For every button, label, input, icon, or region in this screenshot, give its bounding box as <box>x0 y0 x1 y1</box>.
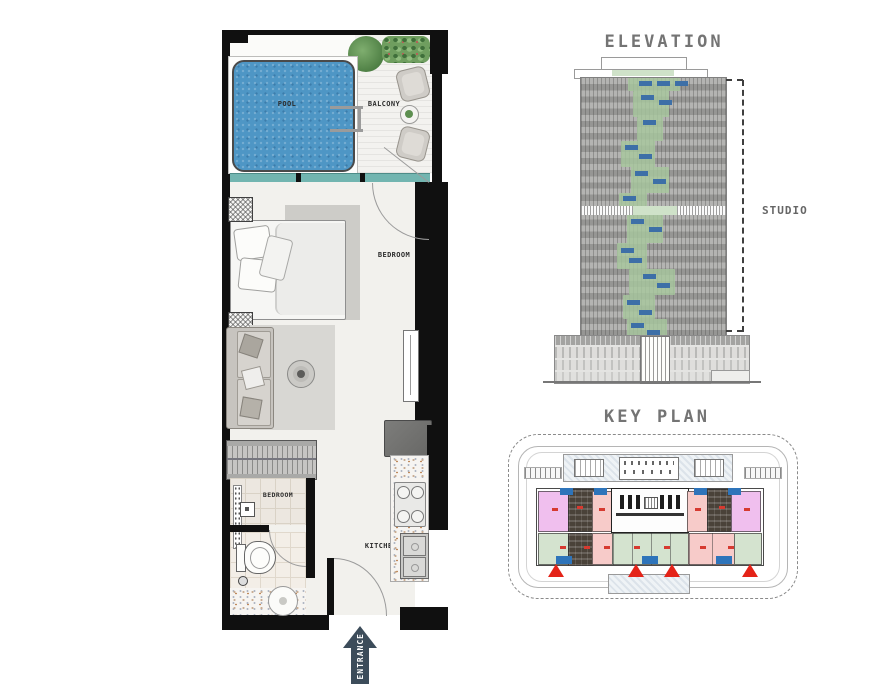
unit-marker <box>577 506 583 509</box>
wardrobe-rail <box>227 441 316 446</box>
key-plan-title: KEY PLAN <box>577 407 737 427</box>
floor-drain-icon <box>238 576 248 586</box>
chair-cushion <box>401 131 426 157</box>
wall-segment <box>360 173 365 182</box>
green-strip <box>617 243 647 269</box>
pool-ladder-icon <box>358 106 361 132</box>
wall-segment <box>400 607 448 630</box>
unit-marker <box>604 546 610 549</box>
tv-unit-icon <box>403 330 419 402</box>
bedroom-label: BEDROOM <box>362 252 426 259</box>
window-highlight <box>641 95 654 100</box>
unit-block-1br <box>538 491 570 532</box>
floor-plan: POOL BALCONY <box>222 30 448 630</box>
unit-marker <box>728 546 734 549</box>
pool <box>232 60 355 172</box>
core-wall <box>628 495 632 509</box>
dressing-label: BEDROOM <box>250 492 306 499</box>
stove-icon <box>394 482 426 527</box>
unit-marker <box>700 546 706 549</box>
core-wall <box>668 495 672 509</box>
mechanical-band-green <box>633 206 677 215</box>
entrance-label-wrap: ENTRANCE <box>343 628 377 684</box>
extent-line <box>726 330 743 332</box>
burner-icon <box>397 510 410 523</box>
amenity-detail <box>624 470 674 474</box>
chair-cushion <box>401 71 426 97</box>
window-highlight <box>639 154 652 159</box>
amenity-deck <box>563 454 733 482</box>
tv-line <box>410 335 411 395</box>
unit-block-studio <box>687 491 709 532</box>
toilet-bowl <box>250 547 270 569</box>
bed <box>230 220 346 320</box>
extent-line <box>726 79 743 81</box>
burner-icon <box>397 486 410 499</box>
basin-drain <box>279 597 287 605</box>
balcony-accent <box>560 488 573 495</box>
window-highlight <box>649 227 662 232</box>
window-highlight <box>657 81 670 86</box>
unit-block-dark <box>707 489 733 532</box>
burner-icon <box>411 486 424 499</box>
green-strip <box>629 269 675 295</box>
shower-strip-icon <box>233 485 242 549</box>
core-wall <box>616 513 684 516</box>
unit-marker <box>695 508 701 511</box>
wall-segment <box>230 525 269 532</box>
parking-row <box>744 467 782 479</box>
window-highlight <box>653 179 666 184</box>
wall-segment <box>327 558 334 615</box>
wall-segment <box>222 30 434 35</box>
elevation-podium <box>554 335 750 384</box>
parking-row <box>524 467 562 479</box>
location-marker-icon <box>742 564 758 577</box>
green-strip <box>623 295 655 319</box>
coffee-table-icon <box>287 360 315 388</box>
coffee-table-center <box>297 370 305 378</box>
core-wall <box>676 495 680 509</box>
wall-segment <box>427 425 448 530</box>
wardrobe-rod <box>227 458 316 460</box>
window-highlight <box>629 258 642 263</box>
entrance-arrow: ENTRANCE <box>343 626 377 684</box>
window-highlight <box>639 310 652 315</box>
balcony-accent <box>716 556 732 564</box>
window-highlight <box>635 171 648 176</box>
podium-entrance <box>640 336 670 384</box>
unit-block-mint <box>734 533 762 565</box>
elevation-tower <box>580 77 727 337</box>
crown-green-band <box>612 70 674 76</box>
balcony-accent <box>556 556 572 564</box>
location-marker-icon <box>664 564 680 577</box>
window-highlight <box>639 81 652 86</box>
unit-marker <box>634 546 640 549</box>
balcony-accent <box>728 488 741 495</box>
window-highlight <box>627 300 640 305</box>
balcony-label: BALCONY <box>354 101 414 108</box>
wardrobe-icon <box>226 440 317 480</box>
sink-icon <box>400 533 429 579</box>
green-strip <box>628 78 680 91</box>
amenity-detail <box>624 461 674 465</box>
burner-icon <box>411 510 424 523</box>
unit-marker <box>584 546 590 549</box>
amenity-structure <box>694 459 724 477</box>
entry-pad <box>608 574 690 594</box>
unit-block-dark <box>568 489 594 532</box>
sink-basin <box>403 536 426 556</box>
balcony-accent <box>694 488 707 495</box>
window-highlight <box>643 120 656 125</box>
shower-head-icon <box>240 502 255 517</box>
appliance-icon <box>384 420 432 457</box>
core-wall <box>620 495 624 509</box>
elevation-title: ELEVATION <box>584 32 744 52</box>
ground-line <box>543 381 761 383</box>
throw-pillow-icon <box>239 396 262 419</box>
extent-line <box>742 80 744 332</box>
unit-marker <box>744 508 750 511</box>
sink-drain <box>411 543 419 551</box>
planter-icon <box>382 36 430 63</box>
unit-marker <box>552 508 558 511</box>
wall-segment <box>296 173 301 182</box>
brochure-page: POOL BALCONY <box>0 0 877 690</box>
sink-basin <box>403 557 426 577</box>
location-marker-icon <box>628 564 644 577</box>
unit-marker <box>719 506 725 509</box>
window-highlight <box>625 145 638 150</box>
amenity-structure <box>619 457 679 480</box>
unit-block-studio <box>592 533 614 565</box>
core-block <box>611 488 689 533</box>
toilet-icon <box>244 541 276 574</box>
window-highlight <box>621 248 634 253</box>
unit-marker <box>599 508 605 511</box>
entrance-label: ENTRANCE <box>356 633 365 680</box>
nightstand-icon <box>228 197 253 222</box>
plant-icon <box>405 110 413 118</box>
basin-icon <box>268 586 298 616</box>
core-wall <box>636 495 640 509</box>
sink-drain <box>411 564 419 572</box>
location-marker-icon <box>548 564 564 577</box>
window-highlight <box>675 81 688 86</box>
wall-segment <box>222 615 329 630</box>
unit-marker <box>664 546 670 549</box>
window-highlight <box>631 323 644 328</box>
unit-marker <box>560 546 566 549</box>
amenity-structure <box>574 459 604 477</box>
wall-segment <box>306 478 315 578</box>
pool-label: POOL <box>252 101 322 108</box>
window-highlight <box>657 283 670 288</box>
balcony-accent <box>642 556 658 564</box>
window-highlight <box>631 219 644 224</box>
studio-annotation: STUDIO <box>762 204 808 217</box>
unit-block-studio <box>592 491 613 532</box>
unit-block-1br <box>731 491 761 532</box>
window-highlight <box>643 274 656 279</box>
window-highlight <box>659 100 672 105</box>
balcony-accent <box>594 488 607 495</box>
wall-segment <box>430 30 448 74</box>
wall-segment <box>432 74 442 182</box>
sofa <box>226 327 274 429</box>
core-wall <box>660 495 664 509</box>
window-highlight <box>623 196 636 201</box>
shower-head-dot <box>245 507 249 511</box>
stair-icon <box>644 497 658 509</box>
